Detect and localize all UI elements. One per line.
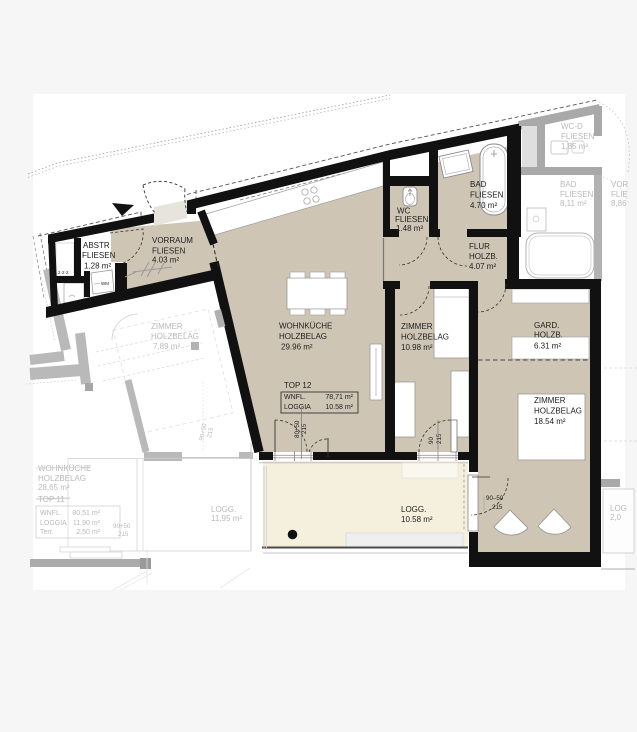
svg-text:LOG: LOG xyxy=(610,504,627,513)
svg-text:BAD: BAD xyxy=(560,180,577,189)
svg-text:WOHNKÜCHE: WOHNKÜCHE xyxy=(38,464,91,473)
svg-text:78,71 m²: 78,71 m² xyxy=(325,394,353,401)
svg-text:WM: WM xyxy=(101,281,109,286)
svg-text:VOR: VOR xyxy=(611,180,629,189)
svg-text:4.07 m²: 4.07 m² xyxy=(469,262,496,271)
svg-text:18.54 m²: 18.54 m² xyxy=(534,417,566,426)
svg-text:LOGG.: LOGG. xyxy=(401,505,426,514)
svg-text:215: 215 xyxy=(301,423,308,434)
svg-text:8,86: 8,86 xyxy=(611,199,627,208)
svg-text:29.96 m²: 29.96 m² xyxy=(281,343,313,352)
svg-text:90–50: 90–50 xyxy=(486,495,504,502)
svg-text:2·2·2: 2·2·2 xyxy=(58,270,69,275)
svg-text:LOGGIA: LOGGIA xyxy=(284,404,311,411)
svg-text:WNFL.: WNFL. xyxy=(40,510,62,517)
svg-text:90: 90 xyxy=(428,437,435,444)
svg-text:ZIMMER: ZIMMER xyxy=(401,322,433,331)
svg-text:HOLZBELAG: HOLZBELAG xyxy=(279,332,327,341)
svg-text:HOLZBELAG: HOLZBELAG xyxy=(38,474,86,483)
svg-text:1,28 m²: 1,28 m² xyxy=(84,262,111,271)
svg-text:GARD.: GARD. xyxy=(534,321,559,330)
svg-text:80+50: 80+50 xyxy=(294,420,301,438)
svg-text:FLIESEN: FLIESEN xyxy=(561,132,595,141)
svg-text:10.58 m²: 10.58 m² xyxy=(325,404,353,411)
svg-text:WNFL.: WNFL. xyxy=(284,394,306,401)
svg-text:80,51 m²: 80,51 m² xyxy=(72,510,100,517)
svg-text:2,50 m²: 2,50 m² xyxy=(76,529,100,536)
svg-text:FLIESEN: FLIESEN xyxy=(560,190,594,199)
svg-text:8,11 m²: 8,11 m² xyxy=(560,199,587,208)
svg-text:1.48 m²: 1.48 m² xyxy=(396,224,423,233)
svg-text:10.98 m²: 10.98 m² xyxy=(401,343,433,352)
svg-text:2,0: 2,0 xyxy=(610,513,622,522)
svg-text:HOLZB.: HOLZB. xyxy=(534,331,563,340)
svg-text:215: 215 xyxy=(118,531,129,538)
svg-text:ABSTR: ABSTR xyxy=(83,241,110,250)
svg-text:11,95 m²: 11,95 m² xyxy=(211,514,242,523)
svg-text:LOGG.: LOGG. xyxy=(211,505,236,514)
svg-text:BAD: BAD xyxy=(470,180,487,189)
svg-text:FLIESEN: FLIESEN xyxy=(470,191,504,200)
svg-text:FLIESEN: FLIESEN xyxy=(152,247,186,256)
svg-text:FLIE: FLIE xyxy=(611,190,628,199)
svg-text:11,90 m²: 11,90 m² xyxy=(73,520,101,527)
svg-text:ZIMMER: ZIMMER xyxy=(534,396,566,405)
svg-text:1,85 m²: 1,85 m² xyxy=(561,142,588,151)
svg-text:TOP 11: TOP 11 xyxy=(38,495,65,504)
svg-text:4.70 m²: 4.70 m² xyxy=(470,201,497,210)
svg-text:6.31 m²: 6.31 m² xyxy=(534,342,561,351)
svg-text:HOLZBELAG: HOLZBELAG xyxy=(401,333,449,342)
svg-text:FLIESEN: FLIESEN xyxy=(395,215,429,224)
svg-text:HOLZB.: HOLZB. xyxy=(469,252,498,261)
svg-text:90+50: 90+50 xyxy=(113,523,131,530)
svg-text:ZIMMER: ZIMMER xyxy=(151,322,183,331)
svg-text:WOHNKÜCHE: WOHNKÜCHE xyxy=(279,322,332,331)
svg-text:WC-D: WC-D xyxy=(561,122,583,131)
svg-text:FLIESEN: FLIESEN xyxy=(82,251,116,260)
svg-text:28,65 m²: 28,65 m² xyxy=(38,483,70,492)
svg-text:LOGGIA: LOGGIA xyxy=(40,520,67,527)
svg-text:VORRAUM: VORRAUM xyxy=(152,236,193,245)
svg-text:HOLZBELAG: HOLZBELAG xyxy=(534,407,582,416)
svg-text:Terr.: Terr. xyxy=(40,529,54,536)
svg-text:215: 215 xyxy=(492,504,503,511)
svg-text:7,89 m²: 7,89 m² xyxy=(153,342,180,351)
svg-text:10.58 m²: 10.58 m² xyxy=(401,515,433,524)
svg-text:215: 215 xyxy=(436,433,443,444)
svg-text:FLUR: FLUR xyxy=(469,242,490,251)
svg-text:4.03 m²: 4.03 m² xyxy=(152,256,179,265)
svg-text:HOLZBELAG: HOLZBELAG xyxy=(151,332,199,341)
svg-text:TOP 12: TOP 12 xyxy=(284,381,312,390)
